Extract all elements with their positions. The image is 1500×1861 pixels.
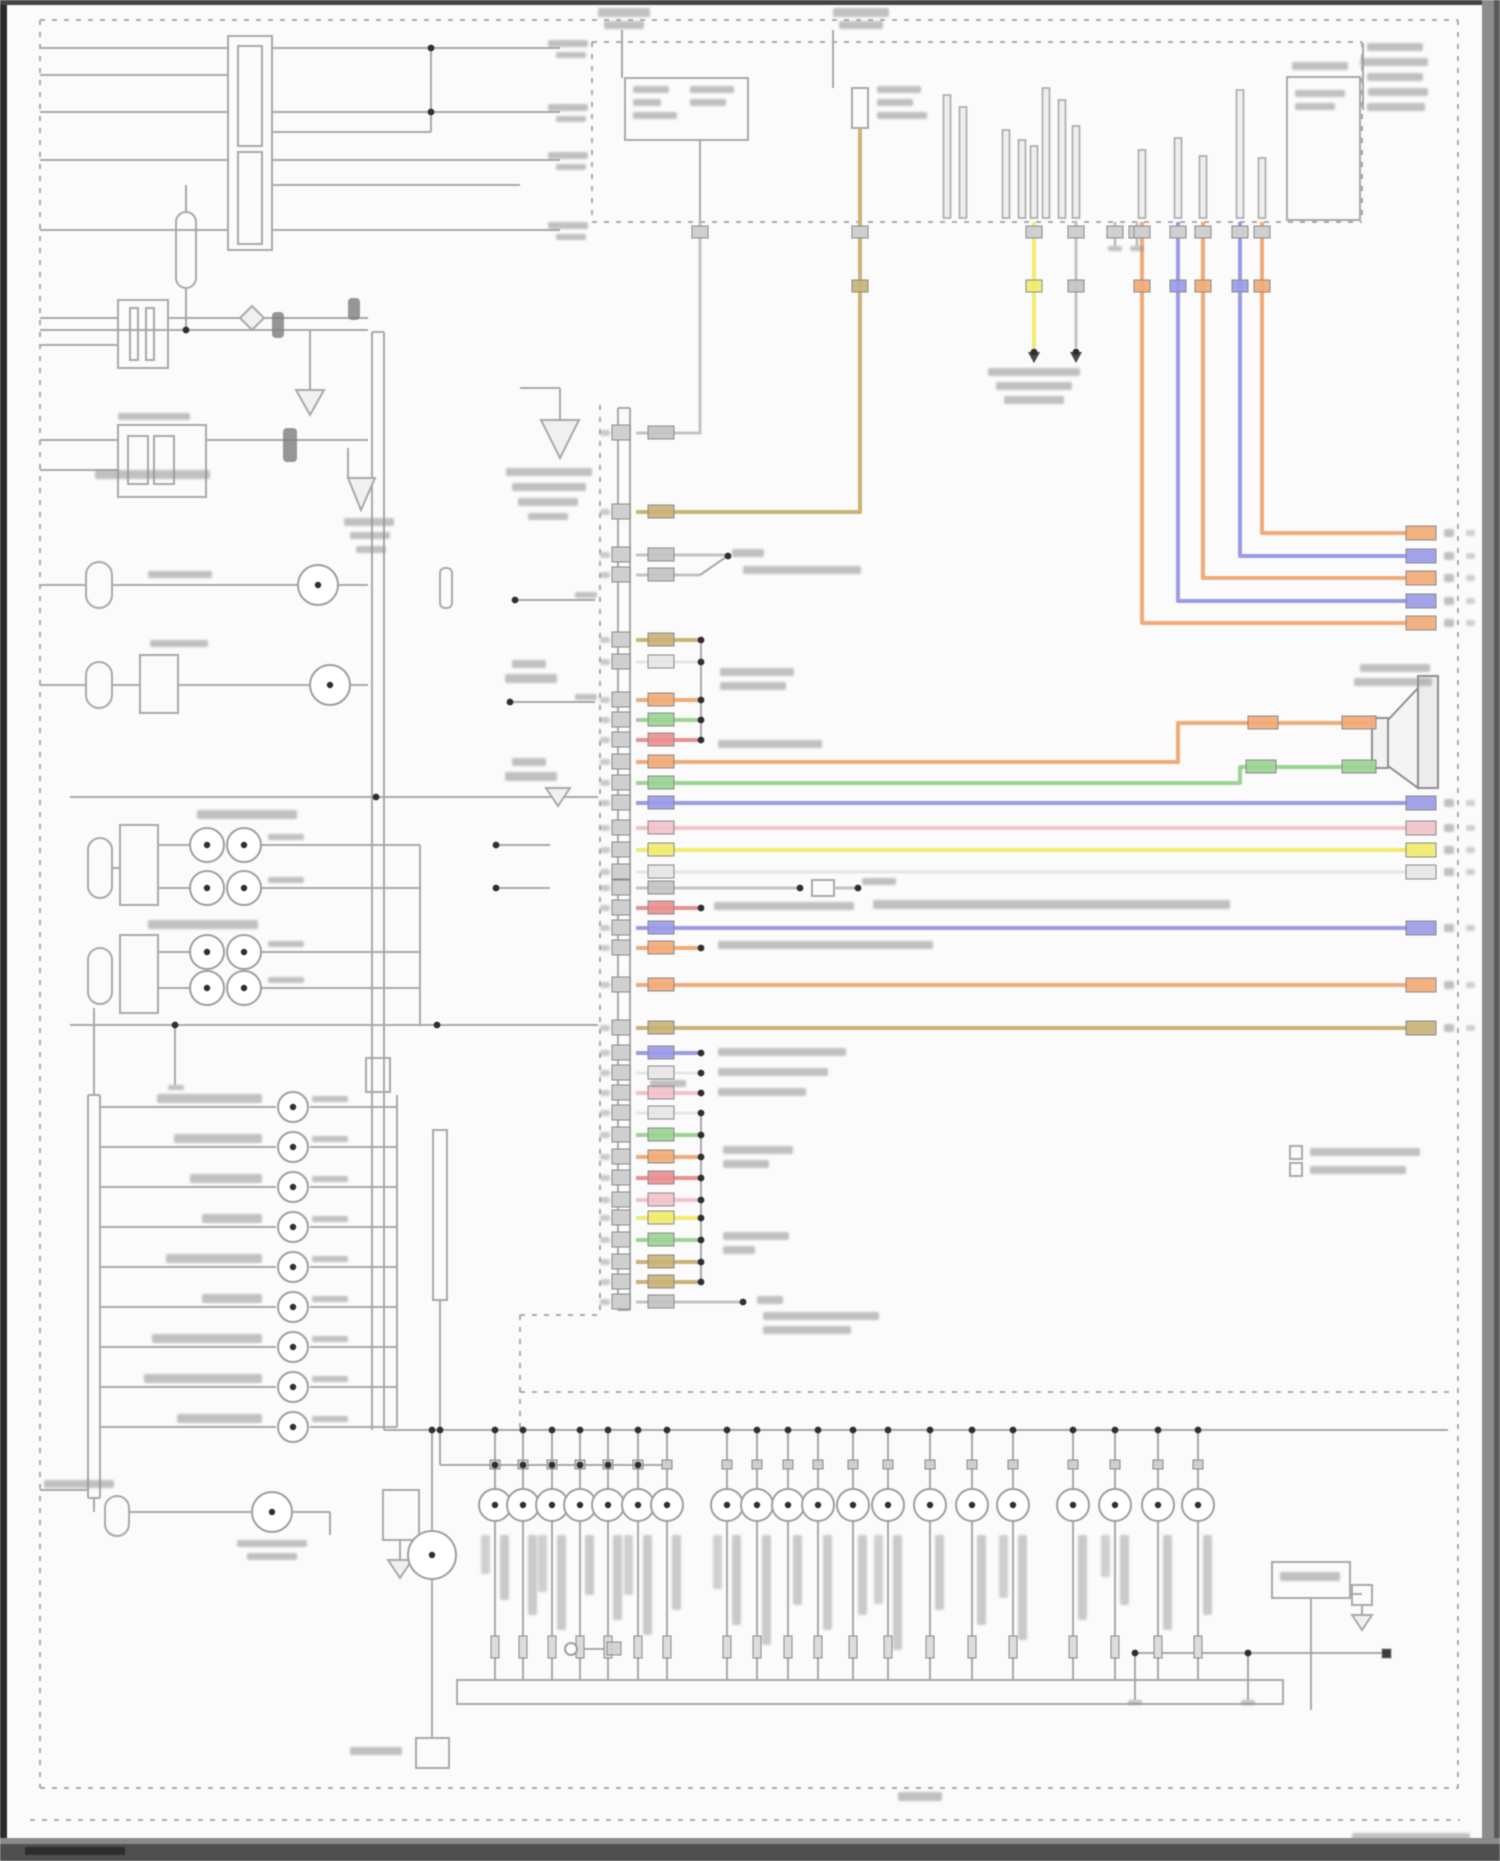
wire-connector bbox=[648, 1193, 674, 1206]
strip-pin bbox=[612, 712, 630, 727]
component-box bbox=[383, 1490, 419, 1540]
label-bar bbox=[312, 1256, 348, 1262]
junction-dot bbox=[1195, 1427, 1202, 1434]
junction-exit-pin bbox=[1195, 226, 1211, 238]
sender-splice bbox=[1069, 1636, 1077, 1658]
junction-dot bbox=[797, 885, 804, 892]
junction-dot bbox=[698, 905, 705, 912]
label-bar bbox=[1466, 847, 1475, 853]
strip-pin bbox=[612, 820, 630, 835]
label-bar bbox=[512, 483, 586, 491]
wire-connector bbox=[648, 843, 674, 856]
component-box bbox=[105, 1496, 129, 1536]
wire-connector bbox=[648, 821, 674, 834]
label-bar bbox=[556, 116, 586, 122]
wire-wgray bbox=[636, 222, 700, 433]
wire-connector bbox=[648, 426, 674, 439]
junction-dot bbox=[549, 1427, 556, 1434]
label-bar bbox=[190, 1174, 262, 1183]
label-bar bbox=[723, 1232, 789, 1240]
sender-pin bbox=[883, 1460, 893, 1469]
lamp-filament-dot bbox=[290, 1384, 296, 1390]
strip-pin bbox=[612, 842, 630, 857]
label-bar bbox=[1444, 597, 1454, 605]
label-bar bbox=[312, 1176, 348, 1182]
junction-dot bbox=[698, 737, 705, 744]
label-bar bbox=[732, 549, 764, 557]
label-bar bbox=[873, 900, 1230, 909]
label-bar bbox=[1466, 530, 1475, 536]
label-bar bbox=[148, 571, 212, 578]
label-bar bbox=[500, 1535, 509, 1600]
label-bar bbox=[600, 1025, 610, 1031]
label-bar bbox=[650, 1080, 686, 1087]
wire-connector bbox=[648, 1046, 674, 1059]
strip-pin bbox=[612, 1192, 630, 1207]
label-bar bbox=[268, 834, 304, 840]
label-bar bbox=[672, 1535, 681, 1610]
label-bar bbox=[1444, 529, 1454, 537]
lamp-filament-dot bbox=[241, 949, 247, 955]
wire-connector bbox=[648, 505, 674, 518]
label-bar bbox=[202, 1214, 262, 1223]
junction-dot bbox=[698, 697, 705, 704]
junction-dot bbox=[815, 1427, 822, 1434]
label-bar bbox=[1444, 924, 1454, 932]
junction-dot bbox=[605, 1462, 612, 1469]
sender-pin bbox=[848, 1460, 858, 1469]
sender-splice bbox=[814, 1636, 822, 1658]
lamp-filament-dot bbox=[785, 1502, 791, 1508]
strip-pin bbox=[612, 775, 630, 790]
strip-pin bbox=[612, 795, 630, 810]
label-bar bbox=[44, 1480, 114, 1488]
connector-blob bbox=[272, 312, 284, 338]
label-bar bbox=[600, 1197, 610, 1203]
label-bar bbox=[600, 1132, 610, 1138]
component-box bbox=[1287, 77, 1360, 220]
label-bar bbox=[1444, 799, 1454, 807]
label-bar bbox=[1466, 553, 1475, 559]
component-box bbox=[88, 948, 112, 1004]
junction-dot bbox=[520, 1462, 527, 1469]
label-bar bbox=[118, 413, 190, 420]
junction-dot bbox=[1245, 1650, 1252, 1657]
label-bar bbox=[600, 759, 610, 765]
sender-splice bbox=[968, 1636, 976, 1658]
label-bar bbox=[556, 164, 586, 170]
sender-splice bbox=[1194, 1636, 1202, 1658]
label-bar bbox=[743, 566, 861, 574]
junction-dot bbox=[698, 1090, 705, 1097]
junction-dot bbox=[698, 1175, 705, 1182]
label-bar bbox=[1292, 62, 1348, 70]
sender-splice bbox=[663, 1636, 671, 1658]
component-box bbox=[457, 1680, 1283, 1704]
label-bar bbox=[268, 877, 304, 883]
wire-connector bbox=[648, 881, 674, 894]
sender-splice bbox=[784, 1636, 792, 1658]
junction-dot bbox=[577, 1427, 584, 1434]
label-bar bbox=[600, 905, 610, 911]
junction-dot bbox=[885, 1427, 892, 1434]
junction-dot bbox=[492, 1462, 499, 1469]
label-bar bbox=[538, 1535, 547, 1592]
strip-pin bbox=[612, 1045, 630, 1060]
inline-connector bbox=[1342, 716, 1376, 729]
junction-dot bbox=[577, 1462, 584, 1469]
junction-exit-pin bbox=[1026, 226, 1042, 238]
lamp-filament-dot bbox=[429, 1552, 435, 1558]
strip-pin bbox=[612, 1294, 630, 1309]
lamp-filament-dot bbox=[269, 1509, 275, 1515]
sender-splice bbox=[1111, 1636, 1119, 1658]
label-bar bbox=[1466, 825, 1475, 831]
label-bar bbox=[988, 368, 1080, 376]
inline-connector bbox=[1406, 571, 1436, 585]
sender-splice bbox=[1009, 1636, 1017, 1658]
label-bar bbox=[600, 637, 610, 643]
label-bar bbox=[518, 498, 578, 506]
strip-pin bbox=[612, 920, 630, 935]
strip-pin bbox=[612, 547, 630, 562]
junction-dot bbox=[855, 885, 862, 892]
page-edge bbox=[0, 1838, 1500, 1844]
inline-connector bbox=[1406, 526, 1436, 540]
label-bar bbox=[1466, 1025, 1475, 1031]
wire-connector bbox=[648, 1086, 674, 1099]
junction-exit-connector bbox=[852, 280, 868, 292]
sender-pin bbox=[1193, 1460, 1203, 1469]
label-bar bbox=[1101, 1535, 1110, 1577]
label-bar bbox=[823, 1535, 832, 1630]
strip-pin bbox=[612, 654, 630, 669]
component-box bbox=[86, 662, 112, 708]
strip-pin bbox=[612, 1274, 630, 1289]
sender-pin bbox=[783, 1460, 793, 1469]
lamp-filament-dot bbox=[241, 985, 247, 991]
label-bar bbox=[312, 1296, 348, 1302]
label-bar bbox=[1108, 246, 1122, 251]
label-bar bbox=[1004, 396, 1064, 404]
label-bar bbox=[718, 1068, 828, 1076]
junction-block-pin bbox=[1259, 158, 1266, 218]
wire-connector bbox=[648, 776, 674, 789]
strip-pin bbox=[612, 1254, 630, 1269]
wiring-diagram bbox=[0, 0, 1500, 1861]
label-bar bbox=[1295, 90, 1345, 97]
component-box bbox=[118, 300, 168, 368]
label-bar bbox=[177, 1414, 262, 1423]
label-bar bbox=[600, 737, 610, 743]
sender-pin bbox=[1008, 1460, 1018, 1469]
label-bar bbox=[633, 99, 661, 106]
junction-exit-pin bbox=[1134, 226, 1150, 238]
component-box bbox=[88, 838, 112, 898]
label-bar bbox=[718, 941, 933, 949]
label-bar bbox=[148, 920, 258, 929]
wire-connector bbox=[648, 633, 674, 646]
inline-connector bbox=[1406, 1021, 1436, 1035]
label-bar bbox=[268, 977, 304, 983]
label-bar bbox=[174, 1134, 262, 1143]
wire-segment bbox=[700, 557, 726, 575]
label-bar bbox=[585, 1535, 594, 1595]
wire-tan bbox=[636, 128, 860, 512]
label-bar bbox=[528, 513, 568, 520]
label-bar bbox=[312, 1336, 348, 1342]
label-bar bbox=[1466, 869, 1475, 875]
speaker-magnet bbox=[1418, 676, 1438, 788]
lamp-filament-dot bbox=[1070, 1502, 1076, 1508]
junction-block-pin bbox=[1043, 88, 1050, 218]
wire-connector bbox=[648, 733, 674, 746]
label-bar bbox=[720, 668, 794, 676]
strip-pin bbox=[612, 632, 630, 647]
junction-exit-connector bbox=[1134, 280, 1150, 292]
junction-block-pin bbox=[1019, 140, 1026, 218]
component-box bbox=[120, 825, 158, 905]
lamp-filament-dot bbox=[204, 985, 210, 991]
label-bar bbox=[643, 1535, 652, 1635]
junction-dot bbox=[698, 945, 705, 952]
inline-connector bbox=[1406, 796, 1436, 810]
label-bar bbox=[1466, 620, 1475, 626]
label-bar bbox=[356, 546, 386, 553]
junction-dot bbox=[1155, 1427, 1162, 1434]
label-bar bbox=[600, 697, 610, 703]
wire-orange bbox=[1203, 222, 1408, 578]
label-bar bbox=[858, 1535, 867, 1615]
label-bar bbox=[935, 1535, 944, 1610]
wire-orange bbox=[1262, 222, 1408, 533]
label-bar bbox=[633, 112, 677, 119]
label-bar bbox=[600, 509, 610, 515]
label-bar bbox=[556, 234, 586, 240]
lamp-filament-dot bbox=[1155, 1502, 1161, 1508]
component-box bbox=[120, 935, 158, 1013]
junction-dot bbox=[698, 1237, 705, 1244]
connector-blob bbox=[283, 428, 297, 462]
label-bar bbox=[1128, 1700, 1142, 1705]
label-bar bbox=[1130, 246, 1144, 251]
label-bar bbox=[600, 982, 610, 988]
label-bar bbox=[604, 21, 644, 29]
label-bar bbox=[1360, 664, 1430, 672]
strip-pin bbox=[612, 1127, 630, 1142]
label-bar bbox=[762, 1535, 771, 1645]
label-bar bbox=[1310, 1148, 1420, 1156]
wiring-diagram-page bbox=[0, 0, 1500, 1861]
lamp-filament-dot bbox=[885, 1502, 891, 1508]
junction-dot bbox=[754, 1427, 761, 1434]
label-bar bbox=[1444, 574, 1454, 582]
label-bar bbox=[247, 1553, 297, 1560]
wire-connector bbox=[648, 1275, 674, 1288]
label-bar bbox=[1295, 103, 1335, 110]
label-bar bbox=[312, 1216, 348, 1222]
strip-pin bbox=[612, 940, 630, 955]
label-bar bbox=[202, 1294, 262, 1303]
label-bar bbox=[312, 1136, 348, 1142]
label-bar bbox=[600, 925, 610, 931]
wire-connector bbox=[648, 1233, 674, 1246]
lamp-filament-dot bbox=[290, 1264, 296, 1270]
label-bar bbox=[1466, 575, 1475, 581]
label-bar bbox=[723, 1146, 793, 1154]
label-bar bbox=[1466, 925, 1475, 931]
label-bar bbox=[152, 1334, 262, 1343]
strip-pin bbox=[612, 1020, 630, 1035]
wire-connector bbox=[648, 941, 674, 954]
component-circle bbox=[565, 1643, 577, 1655]
label-bar bbox=[613, 1535, 622, 1620]
lamp-filament-dot bbox=[1195, 1502, 1201, 1508]
label-bar bbox=[763, 1326, 851, 1334]
label-bar bbox=[157, 1094, 262, 1103]
junction-block-pin bbox=[1175, 138, 1182, 218]
wire-connector bbox=[648, 568, 674, 581]
label-bar bbox=[168, 1085, 184, 1090]
junction-exit-pin bbox=[1254, 226, 1270, 238]
label-bar bbox=[600, 430, 610, 436]
wire-blue bbox=[1178, 222, 1408, 601]
ground-symbol-icon bbox=[541, 420, 579, 458]
lamp-filament-dot bbox=[204, 949, 210, 955]
lamp-filament-dot bbox=[969, 1502, 975, 1508]
junction-dot bbox=[1073, 349, 1080, 356]
label-bar bbox=[237, 1540, 307, 1547]
label-bar bbox=[600, 869, 610, 875]
junction-dot bbox=[725, 553, 732, 560]
junction-block-pin bbox=[1200, 156, 1207, 218]
lamp-filament-dot bbox=[664, 1502, 670, 1508]
label-bar bbox=[600, 717, 610, 723]
component-box bbox=[176, 212, 196, 288]
lamp-filament-dot bbox=[290, 1144, 296, 1150]
inline-connector bbox=[1342, 760, 1376, 773]
label-bar bbox=[600, 1070, 610, 1076]
label-bar bbox=[350, 1747, 402, 1755]
lamp-filament-dot bbox=[204, 885, 210, 891]
label-bar bbox=[713, 1535, 722, 1589]
wire-connector bbox=[648, 978, 674, 991]
label-bar bbox=[793, 1535, 802, 1605]
inline-connector bbox=[1246, 760, 1276, 773]
junction-dot bbox=[698, 1154, 705, 1161]
wire-connector bbox=[648, 693, 674, 706]
junction-dot bbox=[373, 794, 380, 801]
label-bar bbox=[600, 885, 610, 891]
junction-block-pin bbox=[960, 107, 967, 218]
label-bar bbox=[344, 518, 394, 526]
colored-wires bbox=[636, 128, 1408, 1302]
junction-dot bbox=[1112, 1427, 1119, 1434]
junction-dot bbox=[1070, 1427, 1077, 1434]
wire-connector bbox=[648, 1150, 674, 1163]
label-bar bbox=[1444, 981, 1454, 989]
lamp-filament-dot bbox=[241, 842, 247, 848]
label-bar bbox=[1120, 1535, 1129, 1605]
label-bar bbox=[877, 112, 927, 119]
junction-exit-pin bbox=[1170, 226, 1186, 238]
label-bar bbox=[600, 1237, 610, 1243]
sender-splice bbox=[519, 1636, 527, 1658]
junction-dot bbox=[850, 1427, 857, 1434]
wire-connector bbox=[648, 1128, 674, 1141]
junction-dot bbox=[429, 1427, 436, 1434]
lamp-filament-dot bbox=[290, 1224, 296, 1230]
sender-splice bbox=[548, 1636, 556, 1658]
junction-dot bbox=[698, 1070, 705, 1077]
label-bar bbox=[718, 1088, 806, 1096]
wire-connector bbox=[648, 548, 674, 561]
lamp-filament-dot bbox=[724, 1502, 730, 1508]
label-bar bbox=[1241, 1700, 1255, 1705]
label-bar bbox=[268, 941, 304, 947]
strip-pin bbox=[612, 425, 630, 440]
junction-dot bbox=[428, 45, 435, 52]
label-bar bbox=[1367, 73, 1423, 81]
junction-exit-pin bbox=[692, 226, 708, 238]
wire-connector bbox=[648, 1255, 674, 1268]
label-bar bbox=[732, 1535, 741, 1625]
junction-dot bbox=[183, 327, 190, 334]
wire-connector bbox=[648, 796, 674, 809]
wire-blue bbox=[1240, 222, 1408, 556]
label-bar bbox=[600, 1259, 610, 1265]
label-bar bbox=[996, 382, 1072, 390]
ground-symbol-icon bbox=[348, 478, 375, 510]
label-bar bbox=[757, 1296, 783, 1304]
label-bar bbox=[999, 1535, 1008, 1598]
junction-dot bbox=[698, 1259, 705, 1266]
label-bar bbox=[600, 659, 610, 665]
wire-connector bbox=[648, 865, 674, 878]
junction-dot bbox=[549, 1462, 556, 1469]
label-bar bbox=[1444, 1024, 1454, 1032]
label-bar bbox=[600, 552, 610, 558]
label-bar bbox=[1367, 103, 1425, 111]
label-bar bbox=[833, 8, 889, 17]
label-bar bbox=[600, 1154, 610, 1160]
strip-pin bbox=[612, 1170, 630, 1185]
junction-exit-connector bbox=[1068, 280, 1084, 292]
ground-symbol-icon bbox=[296, 390, 324, 415]
junction-dot bbox=[698, 659, 705, 666]
inline-connector bbox=[1406, 865, 1436, 879]
junction-dot bbox=[1132, 1650, 1139, 1657]
component-box bbox=[238, 152, 262, 244]
label-bar bbox=[633, 86, 669, 93]
sender-pin bbox=[925, 1460, 935, 1469]
label-bar bbox=[1444, 846, 1454, 854]
label-bar bbox=[1354, 678, 1432, 686]
junction-exit-connector bbox=[1195, 280, 1211, 292]
inline-connector bbox=[1406, 978, 1436, 992]
inline-connector bbox=[1406, 921, 1436, 935]
junction-dot bbox=[740, 1299, 747, 1306]
page-edge bbox=[0, 0, 1500, 5]
junction-dot bbox=[172, 1022, 179, 1029]
label-bar bbox=[1280, 1572, 1340, 1581]
inline-connector bbox=[1406, 616, 1436, 630]
inline-connector bbox=[1406, 821, 1436, 835]
speaker-horn-icon bbox=[1388, 688, 1418, 788]
lamp-filament-dot bbox=[1112, 1502, 1118, 1508]
label-bar bbox=[600, 1279, 610, 1285]
label-bar bbox=[312, 1096, 348, 1102]
